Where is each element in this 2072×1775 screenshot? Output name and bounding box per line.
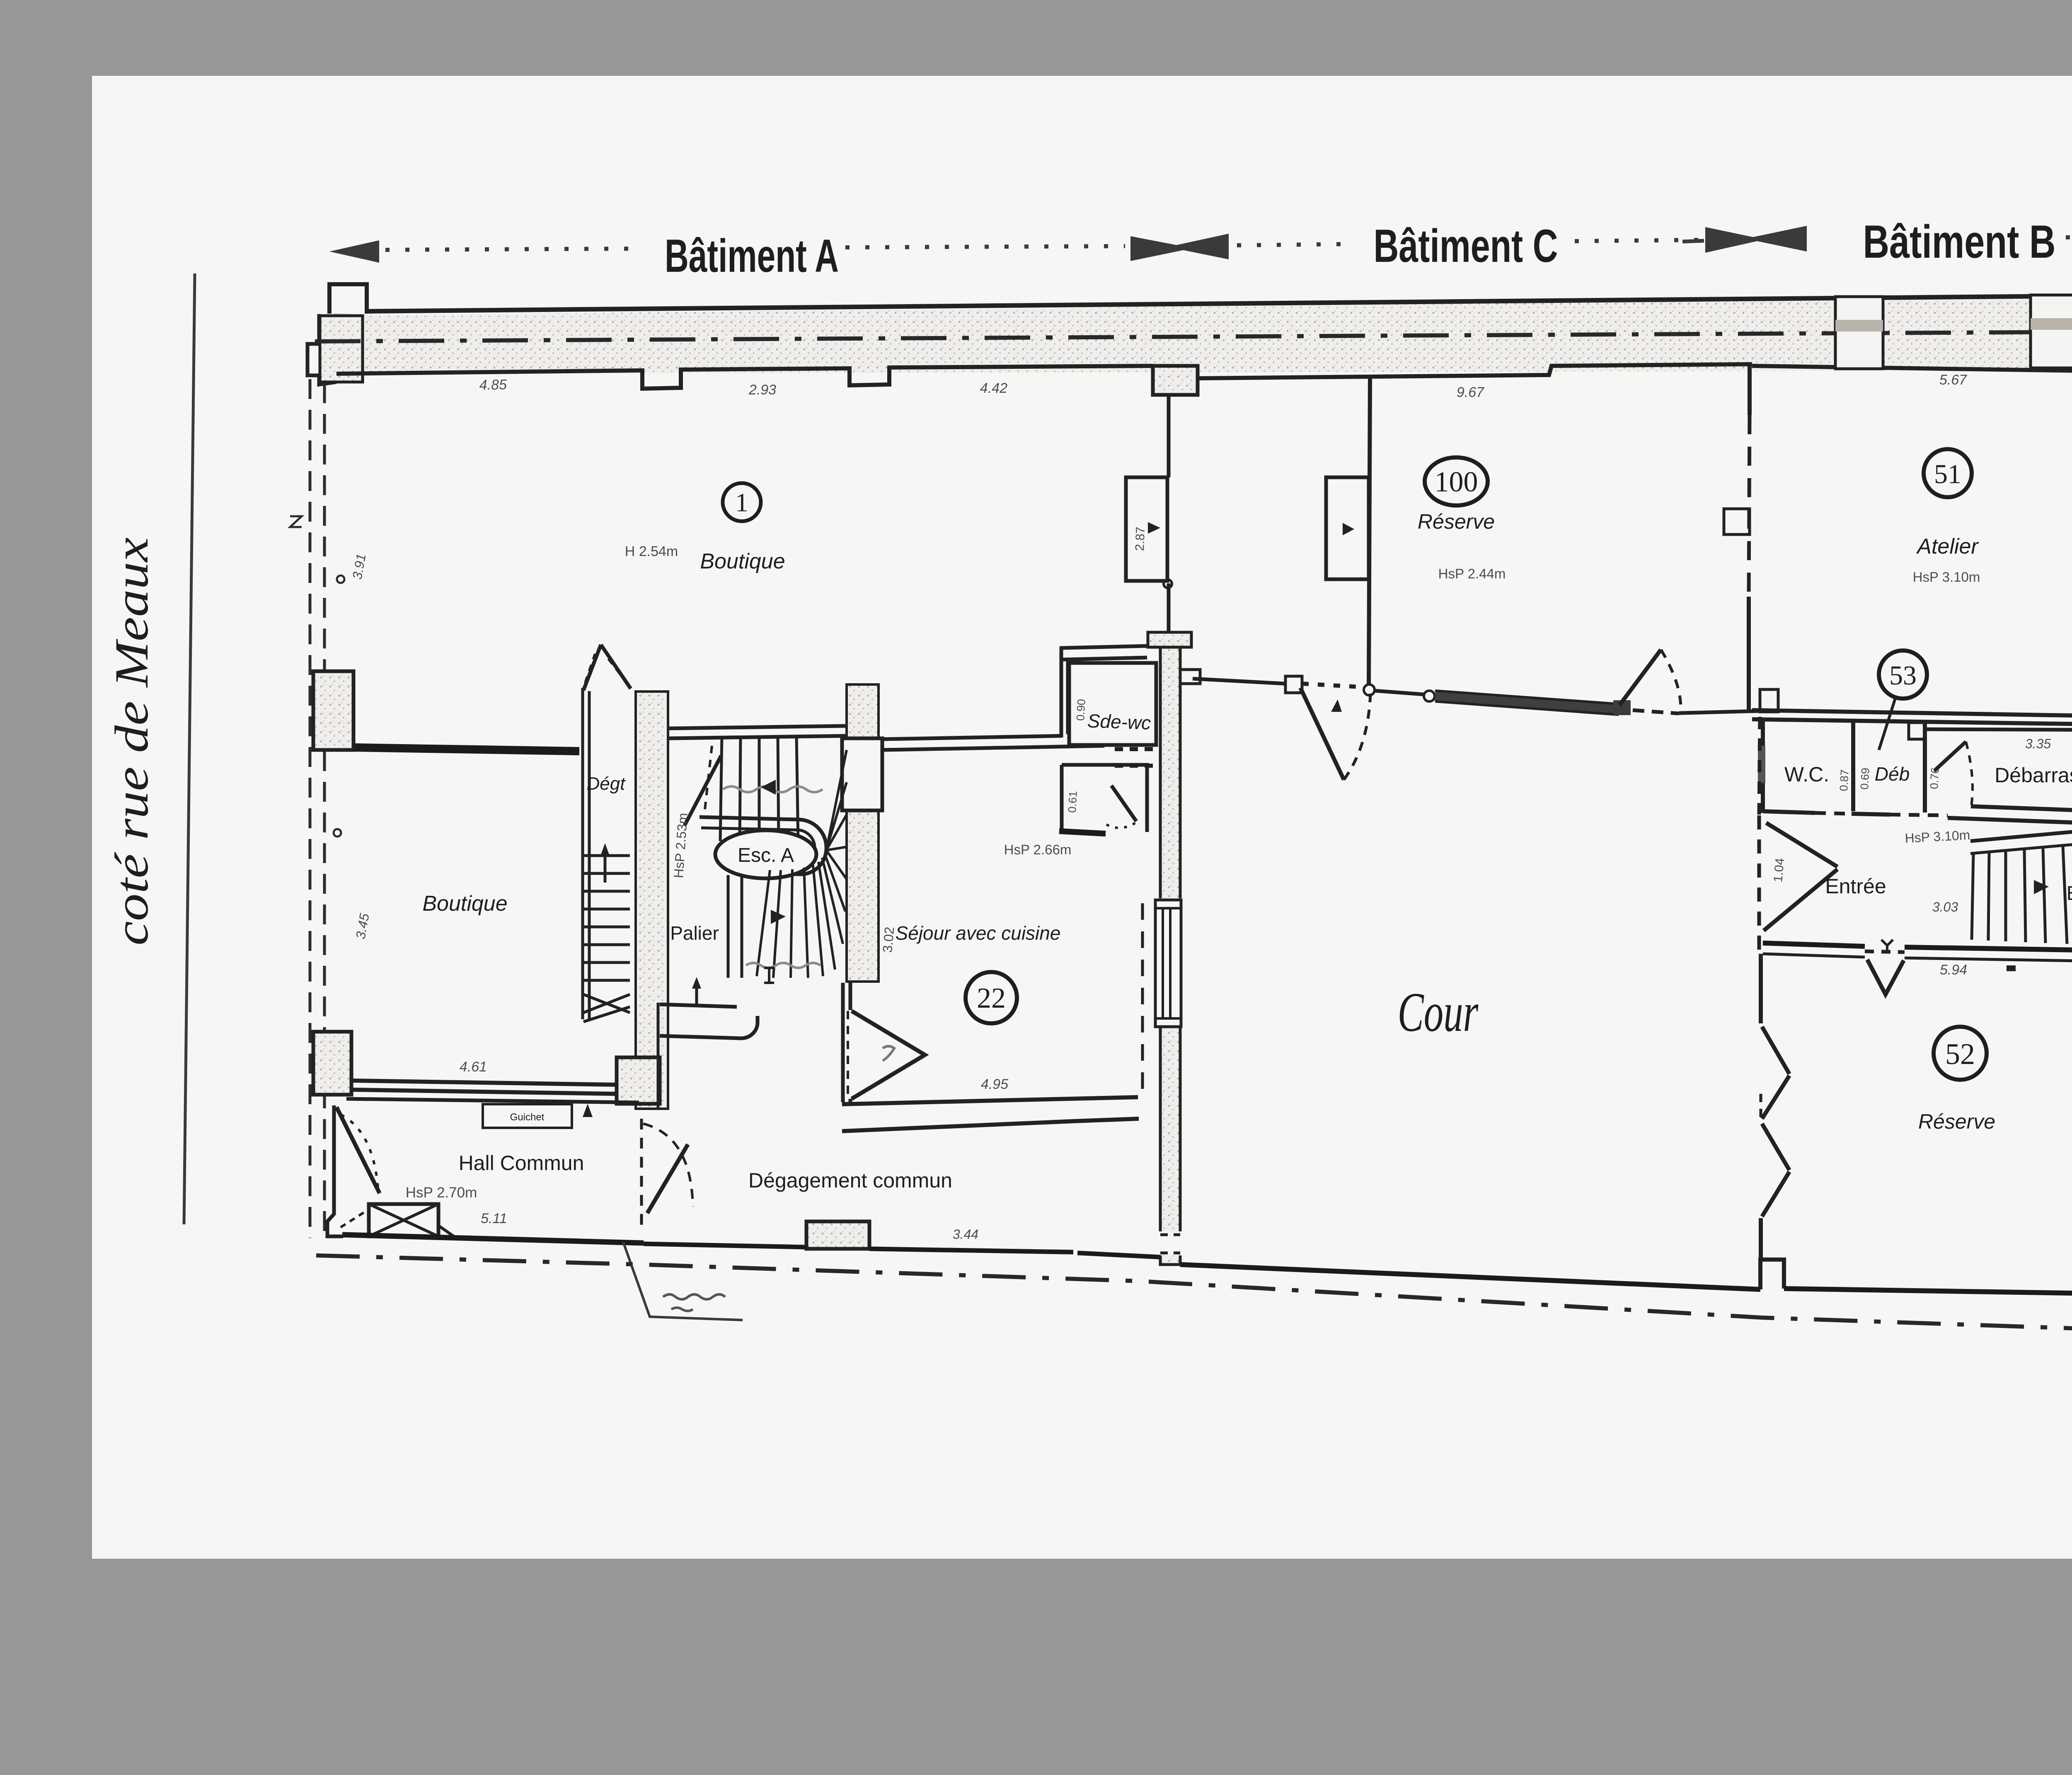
svg-text:Séjour avec cuisine: Séjour avec cuisine — [896, 922, 1061, 944]
svg-text:5.67: 5.67 — [1939, 372, 1967, 388]
svg-text:Guichet: Guichet — [510, 1112, 545, 1123]
svg-text:Entrée: Entrée — [1825, 875, 1886, 898]
svg-text:Bâtiment C: Bâtiment C — [1374, 220, 1558, 272]
svg-text:Réserve: Réserve — [1418, 510, 1495, 533]
svg-text:Cour: Cour — [1398, 982, 1479, 1043]
svg-text:Bâtiment B: Bâtiment B — [1863, 216, 2056, 268]
svg-text:Sde-wc: Sde-wc — [1087, 710, 1151, 733]
svg-text:1: 1 — [735, 488, 748, 517]
svg-text:Bâtiment A: Bâtiment A — [665, 230, 839, 282]
svg-text:Esc. B: Esc. B — [2067, 883, 2072, 904]
svg-text:53: 53 — [1889, 660, 1917, 691]
svg-text:4.61: 4.61 — [460, 1059, 487, 1075]
svg-text:4.42: 4.42 — [980, 380, 1007, 396]
svg-text:HsP 2.44m: HsP 2.44m — [1438, 566, 1506, 581]
svg-text:22: 22 — [977, 982, 1006, 1014]
svg-text:52: 52 — [1945, 1037, 1975, 1071]
svg-text:0.69: 0.69 — [1858, 767, 1872, 790]
svg-text:Boutique: Boutique — [422, 892, 507, 916]
svg-text:Déb: Déb — [1875, 763, 1910, 785]
svg-text:0.61: 0.61 — [1066, 791, 1080, 813]
svg-text:H 2.54m: H 2.54m — [625, 544, 678, 559]
svg-text:0.87: 0.87 — [1837, 769, 1851, 791]
svg-text:Esc. A: Esc. A — [738, 844, 794, 866]
svg-text:Réserve: Réserve — [1918, 1110, 1995, 1133]
svg-text:HsP 2.70m: HsP 2.70m — [406, 1185, 477, 1201]
svg-text:51: 51 — [1934, 459, 1961, 489]
svg-text:9.67: 9.67 — [1457, 385, 1484, 400]
svg-text:4.85: 4.85 — [479, 377, 507, 393]
svg-text:HsP 2.66m: HsP 2.66m — [1004, 842, 1072, 857]
svg-text:2.93: 2.93 — [748, 382, 776, 398]
svg-text:5.94: 5.94 — [1940, 962, 1967, 978]
svg-text:Hall Commun: Hall Commun — [459, 1151, 584, 1175]
svg-text:1.04: 1.04 — [1771, 858, 1787, 883]
svg-text:coté rue de Meaux: coté rue de Meaux — [105, 537, 158, 946]
svg-text:2.87: 2.87 — [1133, 527, 1147, 551]
svg-text:3.44: 3.44 — [953, 1227, 978, 1242]
svg-text:4.95: 4.95 — [981, 1076, 1008, 1092]
svg-text:3.02: 3.02 — [880, 926, 897, 953]
svg-text:Atelier: Atelier — [1916, 534, 1979, 559]
svg-text:HsP 3.10m: HsP 3.10m — [1913, 569, 1980, 585]
svg-text:3.35: 3.35 — [2025, 736, 2051, 751]
svg-text:Boutique: Boutique — [700, 549, 785, 573]
svg-text:5.11: 5.11 — [481, 1211, 507, 1226]
svg-text:Dégagement commun: Dégagement commun — [748, 1169, 952, 1192]
svg-text:Palier: Palier — [670, 922, 719, 944]
svg-text:Dégt: Dégt — [587, 774, 626, 794]
svg-text:3.03: 3.03 — [1932, 900, 1958, 914]
svg-text:0.90: 0.90 — [1074, 699, 1088, 721]
svg-text:Débarras: Débarras — [1995, 764, 2072, 787]
svg-text:W.C.: W.C. — [1784, 763, 1829, 786]
svg-text:100: 100 — [1435, 466, 1478, 498]
